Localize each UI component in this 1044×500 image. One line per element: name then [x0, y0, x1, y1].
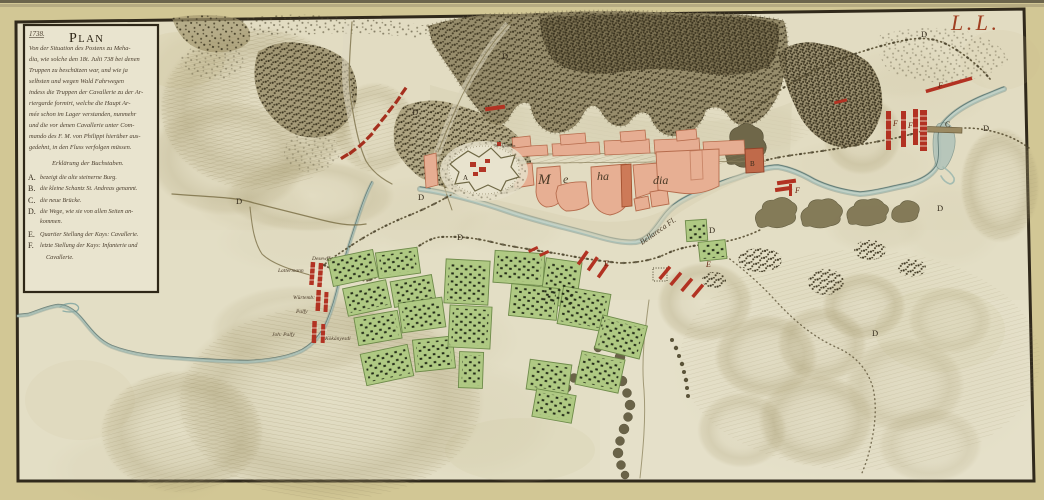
svg-text:gedehnt, in den Fluss verfolge: gedehnt, in den Fluss verfolgen müssen. — [29, 144, 132, 151]
svg-text:D: D — [236, 196, 242, 206]
svg-text:Joh: Palfy: Joh: Palfy — [272, 331, 295, 338]
svg-text:riergarde formirt, welche die: riergarde formirt, welche die Haupt Ar- — [29, 100, 131, 107]
svg-text:C.: C. — [28, 196, 35, 205]
svg-text:F: F — [794, 186, 800, 195]
svg-text:A: A — [463, 174, 468, 182]
svg-text:letzte Stellung der Kays: Infa: letzte Stellung der Kays: Infanterie und — [40, 242, 138, 249]
svg-text:bezeigt die alte steinerne Bur: bezeigt die alte steinerne Burg. — [40, 174, 117, 181]
svg-text:Desewffy: Desewffy — [311, 255, 333, 262]
svg-text:St. Andreas: St. Andreas — [495, 143, 516, 148]
svg-text:dia: dia — [653, 173, 668, 187]
svg-text:Lattermann: Lattermann — [277, 268, 304, 274]
svg-text:Von der Situation des Postens: Von der Situation des Postens zu Meha- — [29, 45, 131, 52]
svg-text:F.: F. — [28, 241, 34, 250]
svg-text:D: D — [457, 232, 463, 242]
svg-text:D: D — [418, 192, 424, 202]
svg-text:Quartier Stellung der Kays: Ca: Quartier Stellung der Kays: Cavallerie. — [40, 231, 138, 238]
svg-text:und die vor denen Cavallerie u: und die vor denen Cavallerie unter Com- — [29, 122, 134, 129]
svg-text:1738.: 1738. — [29, 30, 45, 38]
svg-text:F: F — [892, 119, 898, 128]
svg-text:F: F — [937, 81, 943, 90]
svg-text:D: D — [921, 29, 927, 39]
svg-text:Cavallerie.: Cavallerie. — [46, 254, 74, 261]
svg-text:selbsten und wegen Wald Fahrwe: selbsten und wegen Wald Fahrwegen — [29, 78, 124, 85]
svg-text:F: F — [907, 121, 913, 130]
svg-text:B.: B. — [28, 184, 35, 193]
svg-text:die Wege, wie sie von allen Se: die Wege, wie sie von allen Seiten an- — [40, 208, 133, 215]
svg-text:e: e — [563, 172, 569, 186]
svg-text:indess die Truppen der Cavalle: indess die Truppen der Cavallerie zu der… — [29, 89, 143, 96]
svg-text:PLAN: PLAN — [69, 31, 104, 46]
svg-text:D: D — [709, 225, 715, 235]
svg-text:E: E — [705, 260, 711, 269]
svg-text:Kökänyesdi: Kökänyesdi — [324, 336, 351, 342]
svg-text:M: M — [537, 172, 552, 188]
svg-text:D: D — [937, 203, 943, 213]
svg-text:die kleine Schantz St. Andreas: die kleine Schantz St. Andreas genannt. — [40, 185, 137, 192]
svg-text:dia, wie solche den 18t. Julii: dia, wie solche den 18t. Julii 738 bei d… — [29, 56, 140, 63]
svg-text:A.: A. — [28, 173, 36, 182]
svg-text:Würtemb:: Würtemb: — [293, 295, 315, 301]
svg-text:E.: E. — [28, 230, 35, 239]
svg-text:ha: ha — [597, 169, 609, 183]
svg-text:mando des F. M. von Philippi h: mando des F. M. von Philippi hierüber au… — [29, 133, 141, 140]
svg-text:kommen.: kommen. — [40, 218, 62, 225]
svg-text:E: E — [603, 259, 609, 268]
svg-text:Erklärung der Buchstaben.: Erklärung der Buchstaben. — [51, 160, 124, 167]
svg-text:D.: D. — [28, 207, 36, 216]
svg-text:Truppen zu beschützen war, und: Truppen zu beschützen war, und wie ja — [29, 67, 128, 74]
svg-text:D: D — [412, 107, 418, 117]
svg-text:C: C — [945, 120, 950, 129]
svg-text:D: D — [983, 123, 989, 133]
svg-text:D: D — [872, 328, 878, 338]
svg-text:B: B — [750, 160, 755, 168]
svg-text:mée schon im Lager verstanden,: mée schon im Lager verstanden, nunmehr — [29, 111, 137, 118]
svg-text:Palfy: Palfy — [295, 308, 308, 315]
svg-text:D: D — [502, 51, 508, 61]
svg-text:L.L.: L.L. — [950, 10, 1000, 35]
svg-text:die neue Brücke.: die neue Brücke. — [40, 197, 81, 204]
